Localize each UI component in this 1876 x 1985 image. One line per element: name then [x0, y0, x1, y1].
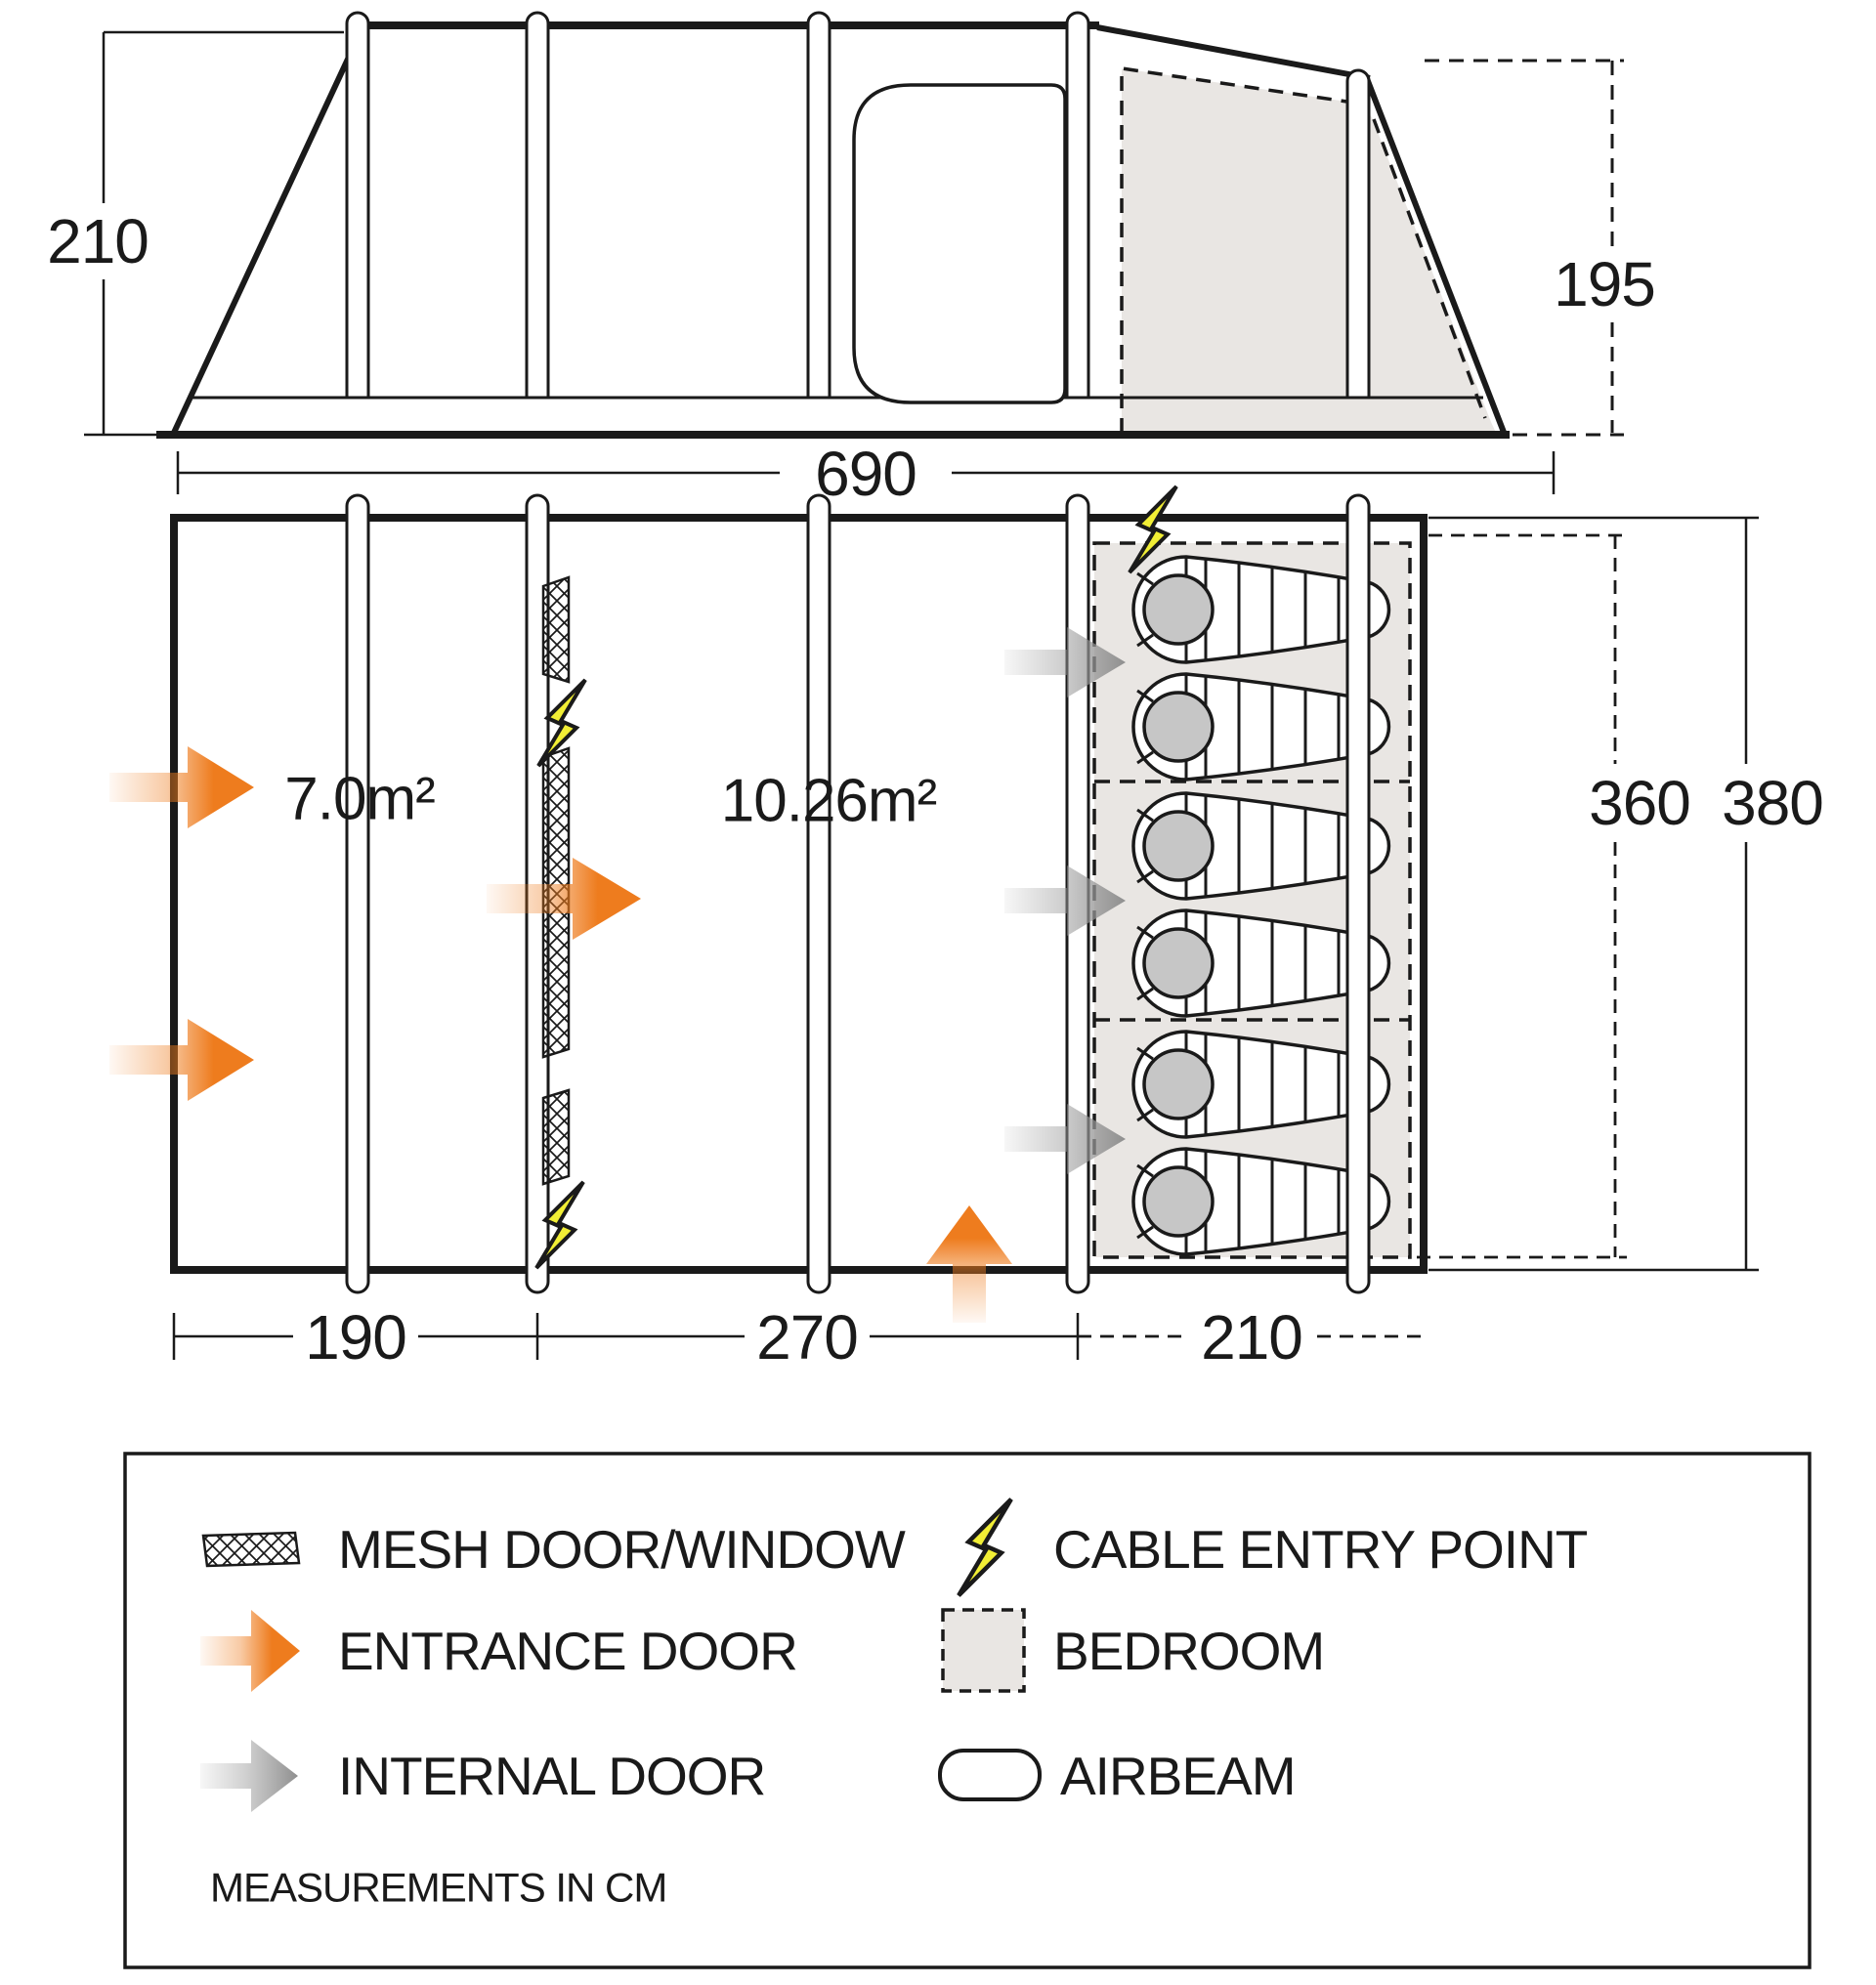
dimension-length-690: 690 — [178, 439, 1554, 509]
airbeam-pole-icon — [527, 13, 548, 398]
bedroom-length-label: 210 — [1201, 1302, 1302, 1373]
bedroom-legend-label: BEDROOM — [1053, 1621, 1324, 1681]
diagram-canvas: 210 195 690 — [0, 0, 1876, 1985]
entrance-door-legend-label: ENTRANCE DOOR — [338, 1621, 797, 1681]
measurements-note: MEASUREMENTS IN CM — [210, 1865, 666, 1911]
elevation-bedroom-area — [1122, 68, 1497, 435]
height-label: 210 — [47, 206, 149, 276]
elevation-window — [854, 85, 1065, 402]
airbeam-legend-icon — [940, 1751, 1040, 1799]
dimension-width-360: 360 — [1417, 535, 1690, 1257]
total-length-label: 690 — [815, 439, 917, 509]
mesh-door-legend-icon — [203, 1533, 299, 1566]
width-inner-label: 360 — [1589, 768, 1690, 838]
airbeam-pole-icon — [1067, 13, 1088, 398]
elevation-left-slope — [173, 25, 363, 435]
bedroom-legend-icon — [943, 1610, 1024, 1691]
bedroom-height-label: 195 — [1554, 249, 1655, 319]
dimension-height-210: 210 — [47, 32, 344, 435]
legend: MESH DOOR/WINDOW CABLE ENTRY POINT ENTRA… — [125, 1454, 1810, 1967]
dimension-width-380: 380 — [1428, 518, 1823, 1270]
mesh-door-legend-label: MESH DOOR/WINDOW — [338, 1519, 906, 1580]
airbeam-pole-icon — [808, 13, 830, 398]
living-area-label: 10.26m² — [721, 768, 937, 835]
porch-length-label: 190 — [305, 1302, 406, 1373]
mesh-door-icon — [543, 1090, 569, 1184]
cable-entry-legend-label: CABLE ENTRY POINT — [1053, 1519, 1588, 1580]
airbeam-pole-icon — [1347, 70, 1369, 398]
dimension-row-bottom: 190 270 210 — [174, 1302, 1428, 1373]
airbeam-pole-icon — [347, 495, 368, 1292]
airbeam-legend-label: AIRBEAM — [1060, 1746, 1296, 1806]
floorplan-view: 7.0m² 10.26m² 360 380 190 270 — [109, 486, 1823, 1373]
width-outer-label: 380 — [1722, 768, 1823, 838]
mesh-door-icon — [543, 577, 569, 682]
airbeam-pole-icon — [347, 13, 368, 398]
elevation-view: 210 195 — [47, 13, 1655, 435]
airbeam-pole-icon — [808, 495, 830, 1292]
living-length-label: 270 — [756, 1302, 858, 1373]
airbeam-pole-icon — [1347, 495, 1369, 1292]
internal-door-legend-label: INTERNAL DOOR — [338, 1746, 765, 1806]
porch-area-label: 7.0m² — [284, 766, 435, 833]
tent-floorplan-diagram: 210 195 690 — [0, 0, 1876, 1985]
